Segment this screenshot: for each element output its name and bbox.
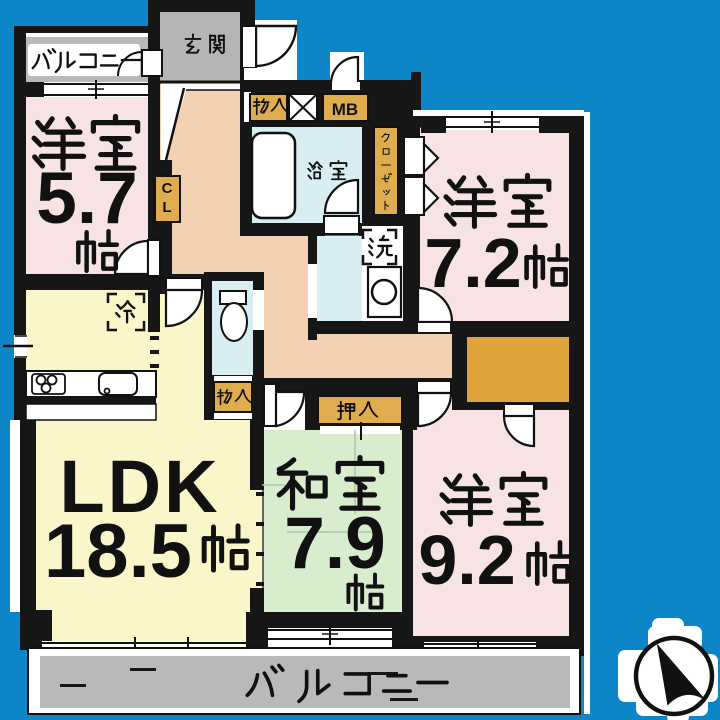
svg-text:7.9: 7.9 bbox=[284, 503, 385, 584]
svg-text:MB: MB bbox=[332, 100, 358, 119]
svg-text:L: L bbox=[162, 199, 171, 216]
svg-text:18.5: 18.5 bbox=[44, 509, 192, 594]
svg-text:7.2: 7.2 bbox=[424, 224, 521, 302]
svg-text:C: C bbox=[162, 180, 173, 197]
svg-text:5.7: 5.7 bbox=[36, 158, 137, 239]
svg-text:9.2: 9.2 bbox=[418, 521, 515, 599]
